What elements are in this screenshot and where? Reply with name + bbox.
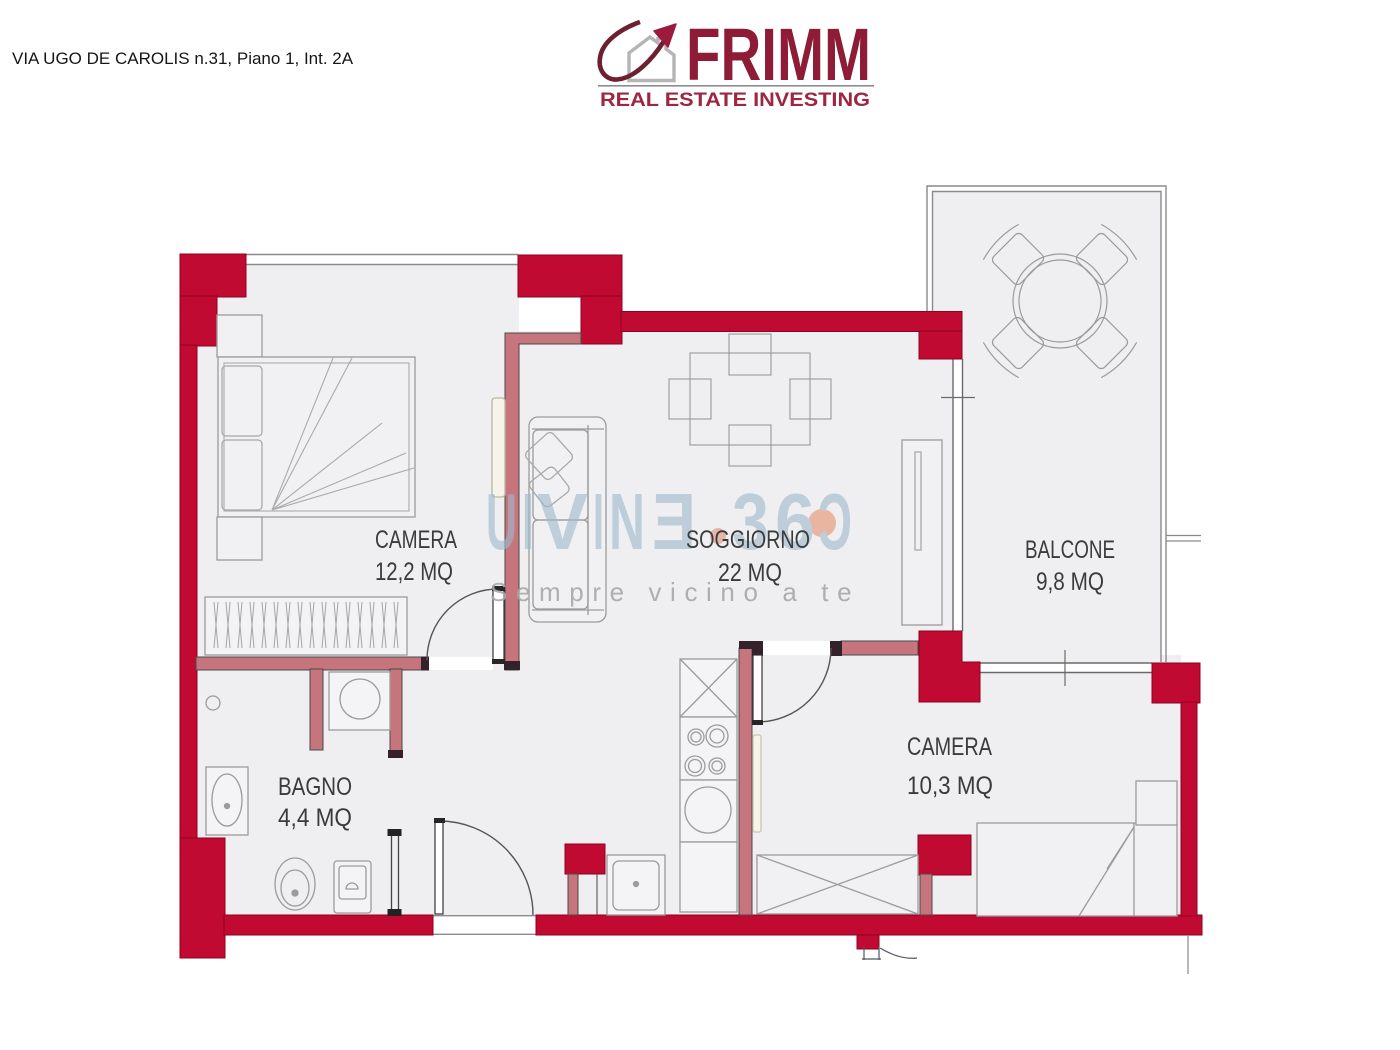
svg-text:C: C xyxy=(818,477,852,566)
svg-text:BALCONE: BALCONE xyxy=(1025,536,1115,564)
svg-text:CAMERA: CAMERA xyxy=(907,733,992,761)
svg-text:VIA UGO DE CAROLIS n.31, Piano: VIA UGO DE CAROLIS n.31, Piano 1, Int. 2… xyxy=(12,49,354,68)
svg-text:N: N xyxy=(609,477,645,566)
svg-text:U: U xyxy=(486,477,517,566)
svg-text:22 MQ: 22 MQ xyxy=(718,559,782,587)
svg-text:Sempre vicino a te: Sempre vicino a te xyxy=(490,577,860,607)
svg-text:CAMERA: CAMERA xyxy=(375,526,457,554)
svg-text:9,8 MQ: 9,8 MQ xyxy=(1036,568,1104,596)
svg-text:4,4 MQ: 4,4 MQ xyxy=(278,804,352,832)
svg-text:FRIMM: FRIMM xyxy=(686,13,871,96)
svg-text:SOGGIORNO: SOGGIORNO xyxy=(686,526,810,554)
svg-text:REAL ESTATE INVESTING: REAL ESTATE INVESTING xyxy=(600,89,870,111)
svg-text:12,2 MQ: 12,2 MQ xyxy=(375,558,453,586)
svg-text:10,3 MQ: 10,3 MQ xyxy=(907,772,993,800)
svg-text:V: V xyxy=(537,477,588,566)
svg-text:I: I xyxy=(522,477,534,566)
svg-text:BAGNO: BAGNO xyxy=(278,773,352,801)
svg-text:I: I xyxy=(593,477,604,566)
